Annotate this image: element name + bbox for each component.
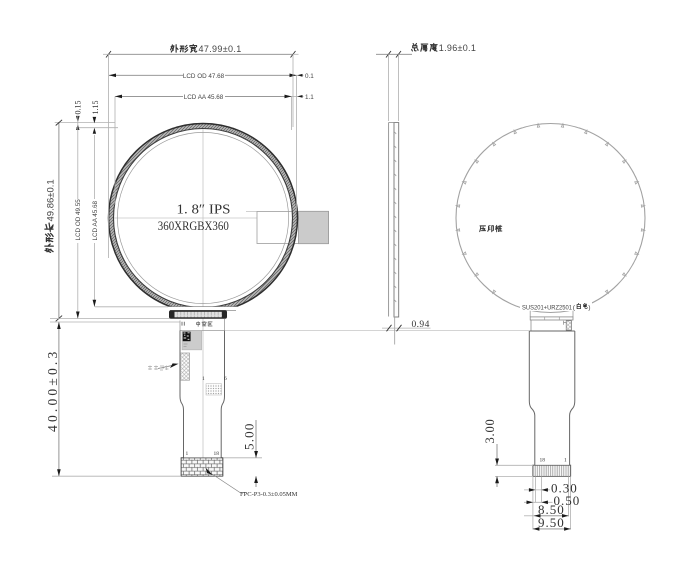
- svg-text:0.1: 0.1: [305, 73, 314, 80]
- svg-text:0.94: 0.94: [412, 320, 430, 330]
- svg-text:LCD OD 47.68: LCD OD 47.68: [183, 73, 225, 80]
- svg-text:5.00: 5.00: [242, 422, 257, 450]
- svg-text:): ): [588, 304, 590, 311]
- svg-text:6: 6: [224, 376, 227, 382]
- svg-text:47.99±0.1: 47.99±0.1: [199, 44, 242, 54]
- svg-text:49.86±0.1: 49.86±0.1: [46, 179, 57, 221]
- svg-text:LCD OD 49.55: LCD OD 49.55: [75, 199, 82, 241]
- svg-text:9.50: 9.50: [538, 515, 565, 530]
- svg-text:0.15: 0.15: [74, 101, 83, 115]
- svg-text:1: 1: [186, 451, 189, 457]
- svg-text:LCD AA 45.68: LCD AA 45.68: [92, 200, 99, 240]
- svg-text:LCD AA 45.68: LCD AA 45.68: [184, 94, 224, 101]
- svg-text:FPC-P3-0.3±0.05MM: FPC-P3-0.3±0.05MM: [240, 491, 298, 498]
- svg-text:1.1: 1.1: [305, 94, 314, 101]
- svg-text:1. 8″ IPS: 1. 8″ IPS: [177, 202, 231, 217]
- svg-text:1: 1: [564, 458, 567, 464]
- svg-text:40.00±0.3: 40.00±0.3: [45, 349, 60, 432]
- svg-text:18: 18: [214, 451, 220, 457]
- svg-text:18: 18: [540, 458, 546, 464]
- svg-text:1: 1: [202, 376, 205, 382]
- svg-text:1.15: 1.15: [91, 101, 100, 115]
- svg-text:360XRGBX360: 360XRGBX360: [158, 218, 229, 233]
- svg-text:3.00: 3.00: [483, 418, 497, 443]
- svg-text:1.96±0.1: 1.96±0.1: [439, 43, 476, 53]
- svg-text:SUS201+URZ2501: SUS201+URZ2501: [522, 304, 572, 311]
